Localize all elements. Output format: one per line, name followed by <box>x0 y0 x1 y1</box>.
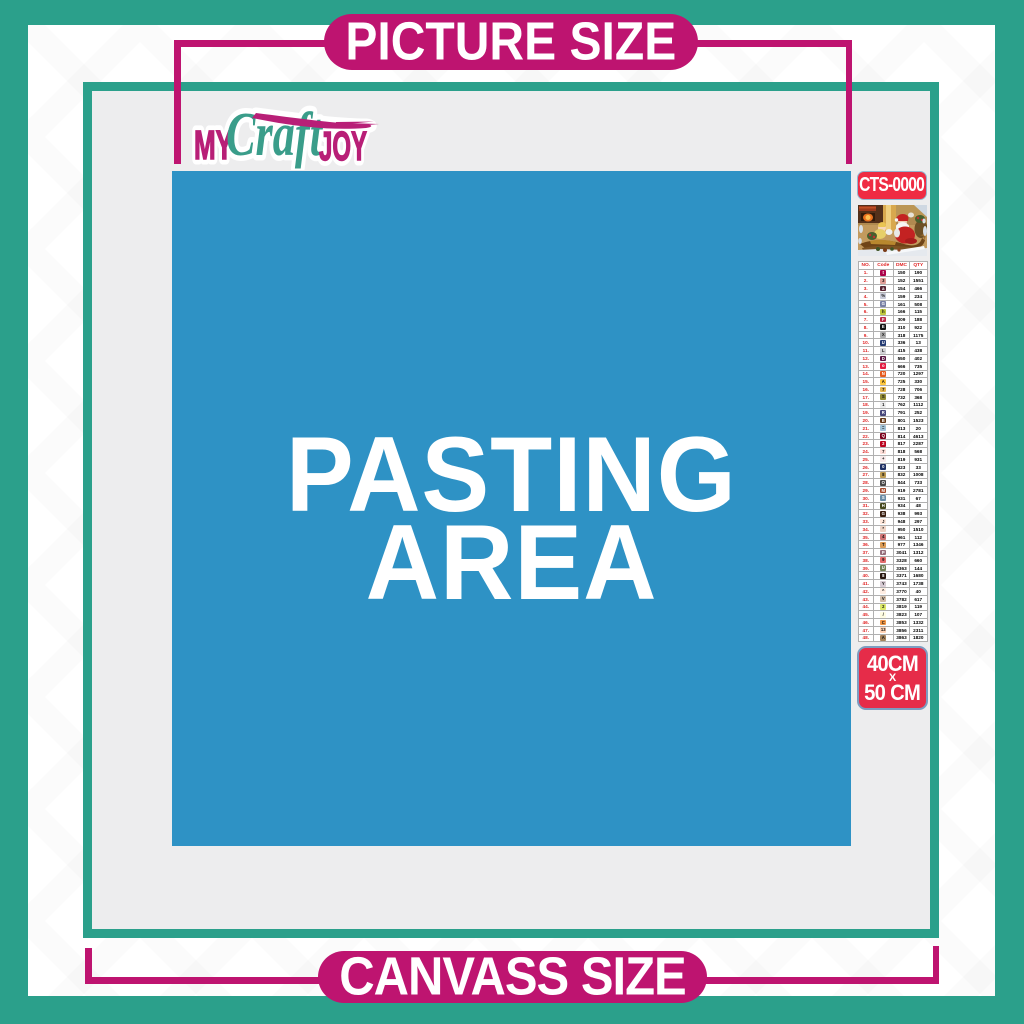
svg-text:JOY: JOY <box>319 123 367 169</box>
svg-text:Craft: Craft <box>226 101 323 169</box>
